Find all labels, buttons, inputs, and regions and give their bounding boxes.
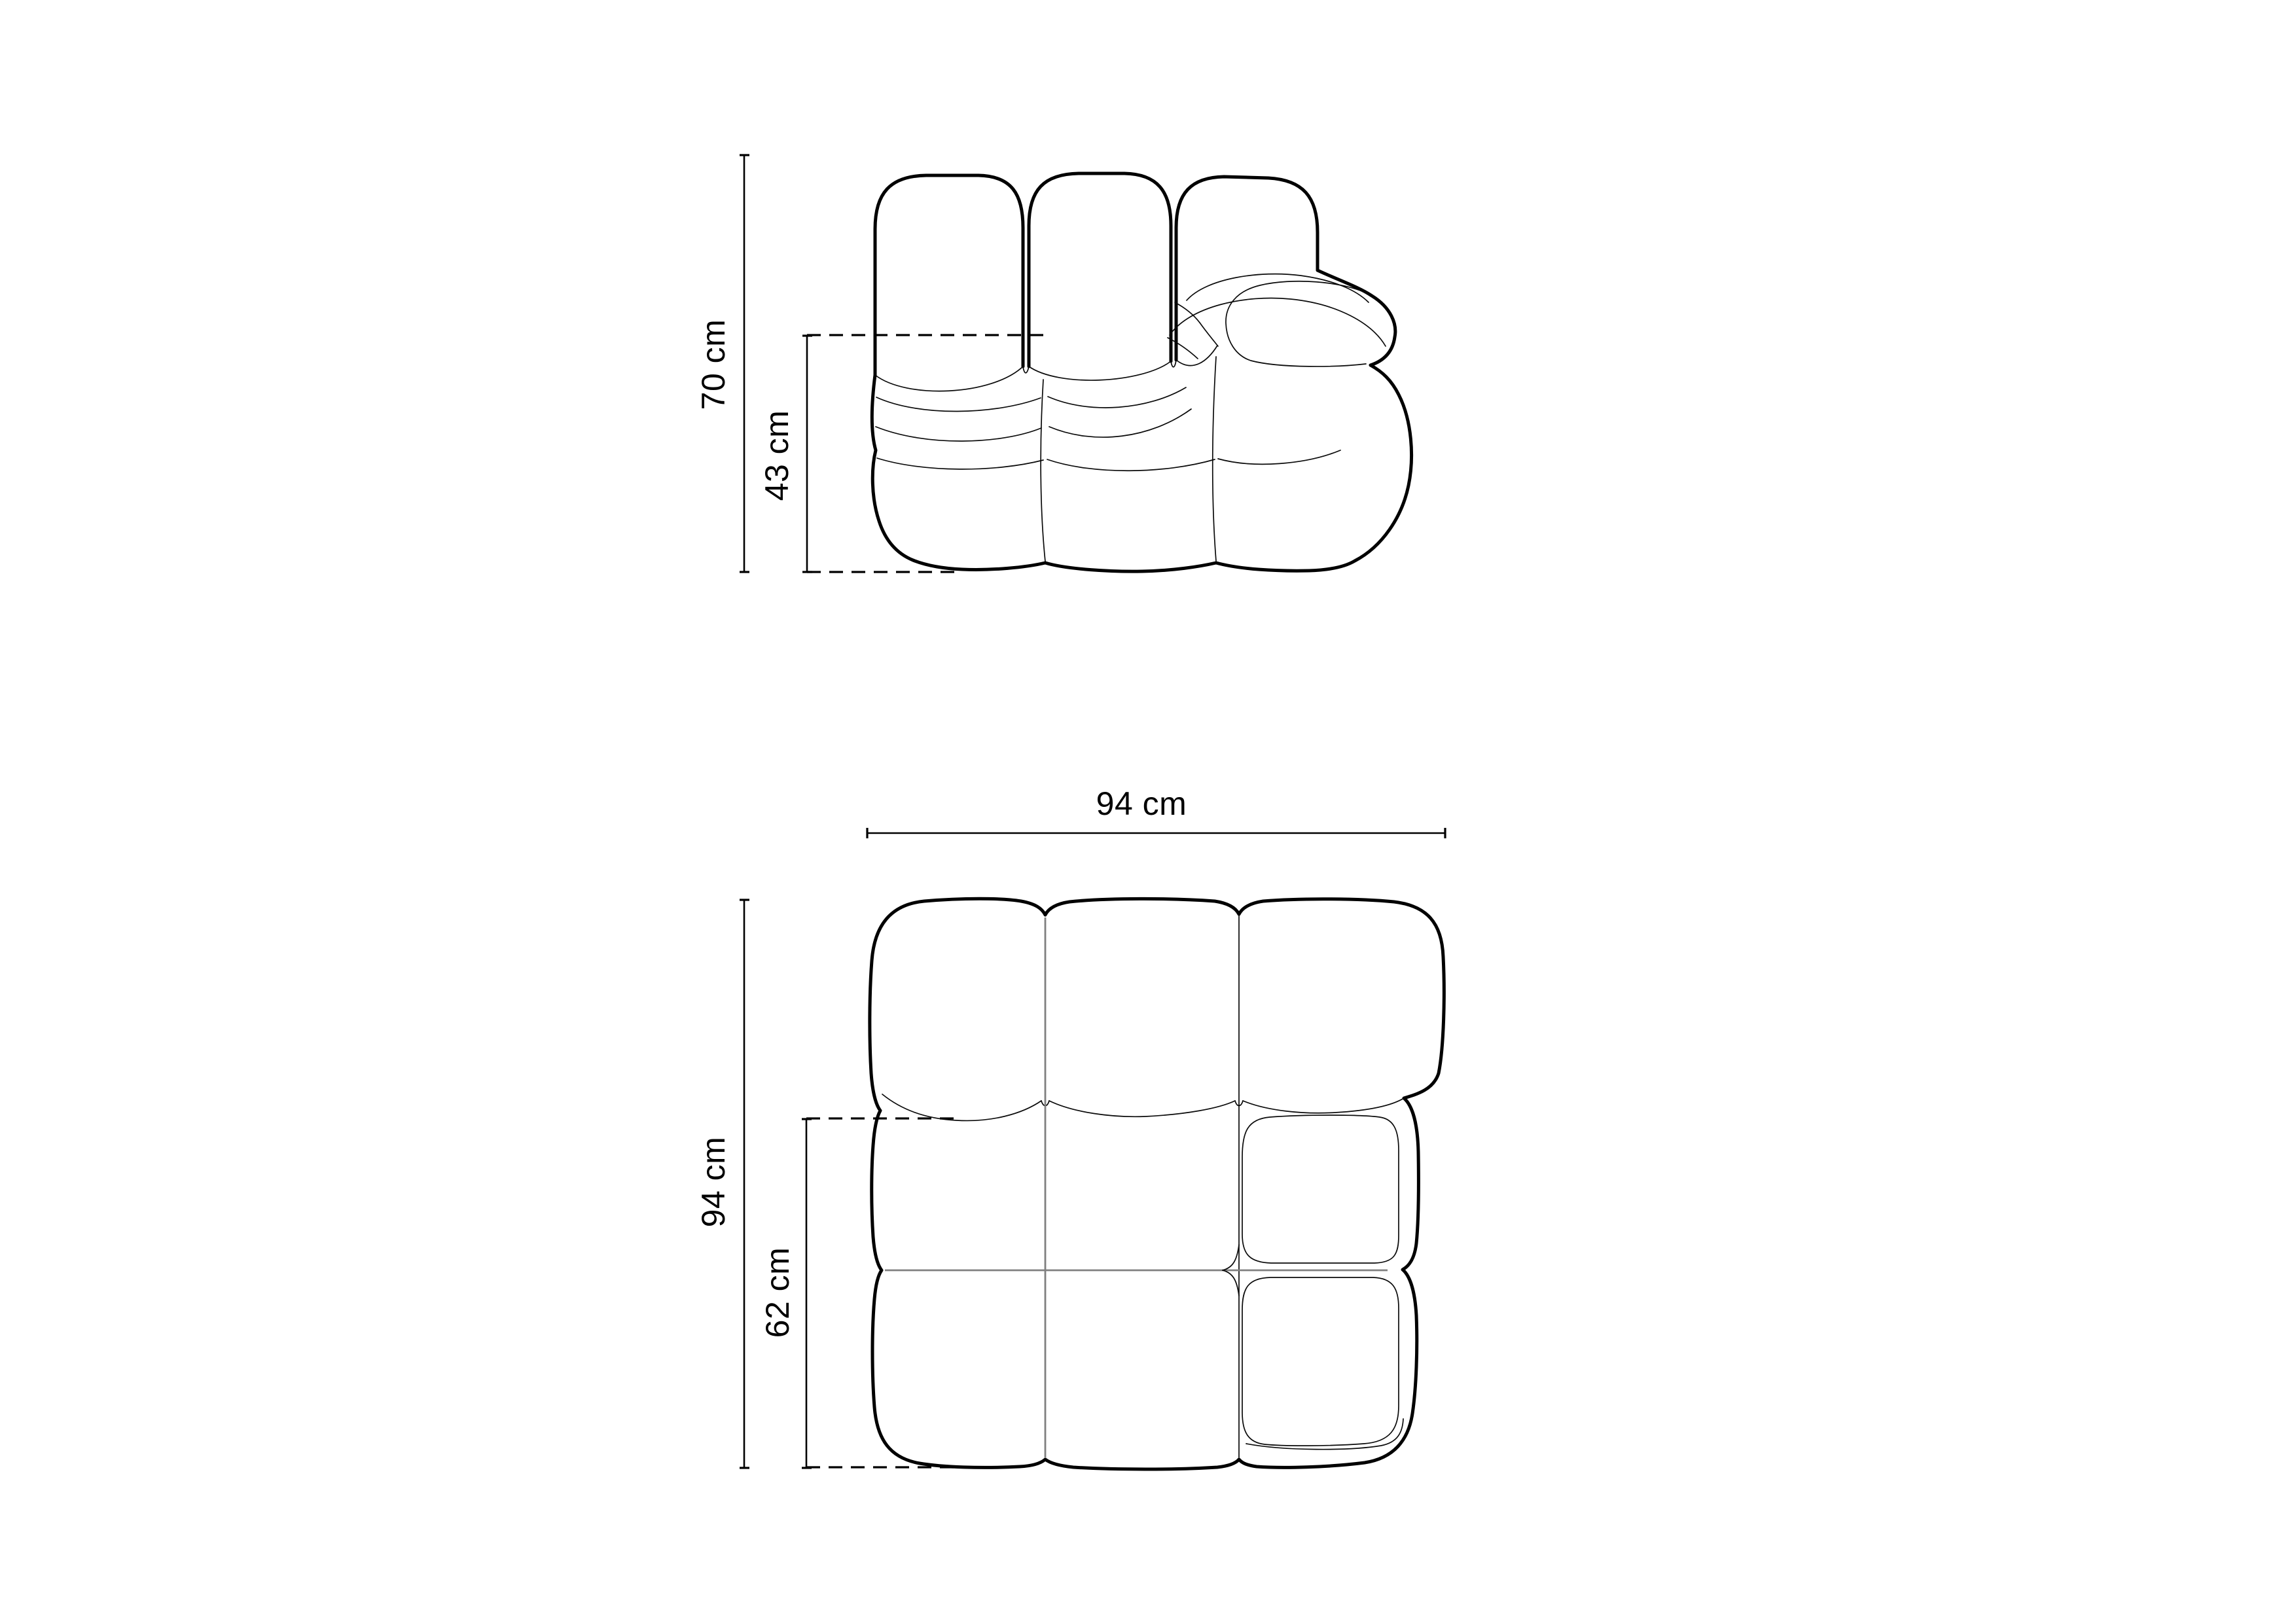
front-back-cushion-middle-seam [1029, 361, 1171, 380]
top-armrest-cell-bottom [1242, 1277, 1399, 1446]
front-view: 70 cm 43 cm [695, 155, 1412, 572]
front-seat-front-top-left [877, 458, 1043, 469]
top-dimension-overall-depth: 94 cm [695, 900, 749, 1468]
width-dimension-label: 94 cm [1096, 785, 1187, 822]
top-seam-crossing-flare [1223, 1245, 1239, 1270]
front-back-cushion-left-seam [875, 366, 1023, 391]
top-armrest-cell-middle [1242, 1115, 1399, 1263]
front-seat-seam-row2-left [876, 427, 1041, 441]
front-armrest-roll-middle [1170, 298, 1386, 346]
seat-height-dimension-label: 43 cm [759, 410, 795, 501]
front-sofa-silhouette [872, 365, 1411, 571]
top-back-cushion-left-seam [882, 1094, 1041, 1120]
front-armrest-junction-seam [1200, 323, 1218, 346]
front-dimension-overall-height: 70 cm [695, 155, 749, 572]
front-seat-front-top-right [1218, 450, 1340, 464]
front-dimension-seat-height: 43 cm [759, 335, 1045, 572]
sofa-dimension-drawing: 70 cm 43 cm [0, 0, 2296, 1623]
front-seat-seam-row1-left [876, 397, 1041, 412]
front-armrest-roll-front [1226, 281, 1367, 366]
front-back-cushion-middle [1029, 173, 1171, 366]
height-dimension-label: 70 cm [695, 319, 732, 410]
front-seat-seam-row2-right [1049, 409, 1191, 437]
top-view: 94 cm 94 cm 62 cm [695, 785, 1445, 1469]
front-seat-seam-row1-right [1048, 387, 1186, 408]
front-back-cushion-right-seam [1176, 346, 1217, 366]
depth-dimension-label: 94 cm [695, 1137, 732, 1228]
top-dimension-overall-width: 94 cm [867, 785, 1445, 838]
front-seat-vertical-seam-left [1041, 380, 1045, 562]
top-sofa-silhouette [870, 899, 1444, 1469]
top-back-cushion-right-seam [1243, 1098, 1404, 1113]
front-seat-vertical-seam-right [1213, 357, 1216, 561]
top-dimension-seat-depth: 62 cm [759, 1118, 980, 1468]
dimension-diagram-page: 70 cm 43 cm [0, 0, 2296, 1623]
seat-depth-dimension-label: 62 cm [759, 1247, 796, 1338]
front-seat-front-top-middle [1047, 459, 1215, 471]
top-seam-crossing-flare [1223, 1270, 1239, 1296]
top-back-cushion-middle-seam [1049, 1101, 1235, 1116]
front-armrest-junction-seam [1175, 302, 1200, 323]
front-back-cushion-right-and-armrest-top [1176, 177, 1395, 365]
front-back-cushion-left [875, 175, 1023, 375]
